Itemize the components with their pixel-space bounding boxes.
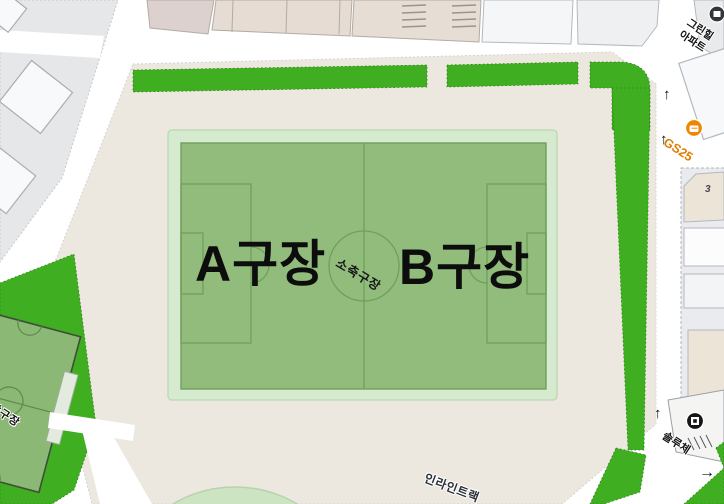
apartment-icon[interactable] — [709, 6, 724, 22]
field-b-label: B구장 — [399, 241, 530, 294]
top-buildings — [147, 0, 659, 46]
street-arrow-up-icon: ↑ — [654, 405, 662, 422]
street-arrow-right-icon: → — [699, 464, 715, 482]
map-viewport[interactable]: A구장 B구장 소축구장 풋살구장 인라인트랙 GS25 그린힐 아파트 솔루체… — [0, 0, 724, 504]
right-building-complex — [681, 168, 724, 420]
soluche-icon[interactable] — [687, 413, 704, 430]
street-arrow-up-icon: ↑ — [663, 86, 671, 103]
field-a-label: A구장 — [195, 238, 326, 291]
basemap-svg — [0, 0, 724, 504]
gs25-icon[interactable] — [686, 120, 703, 137]
building-number-label: 3 — [705, 185, 711, 196]
street-arrow-up-icon: ↑ — [660, 131, 668, 148]
